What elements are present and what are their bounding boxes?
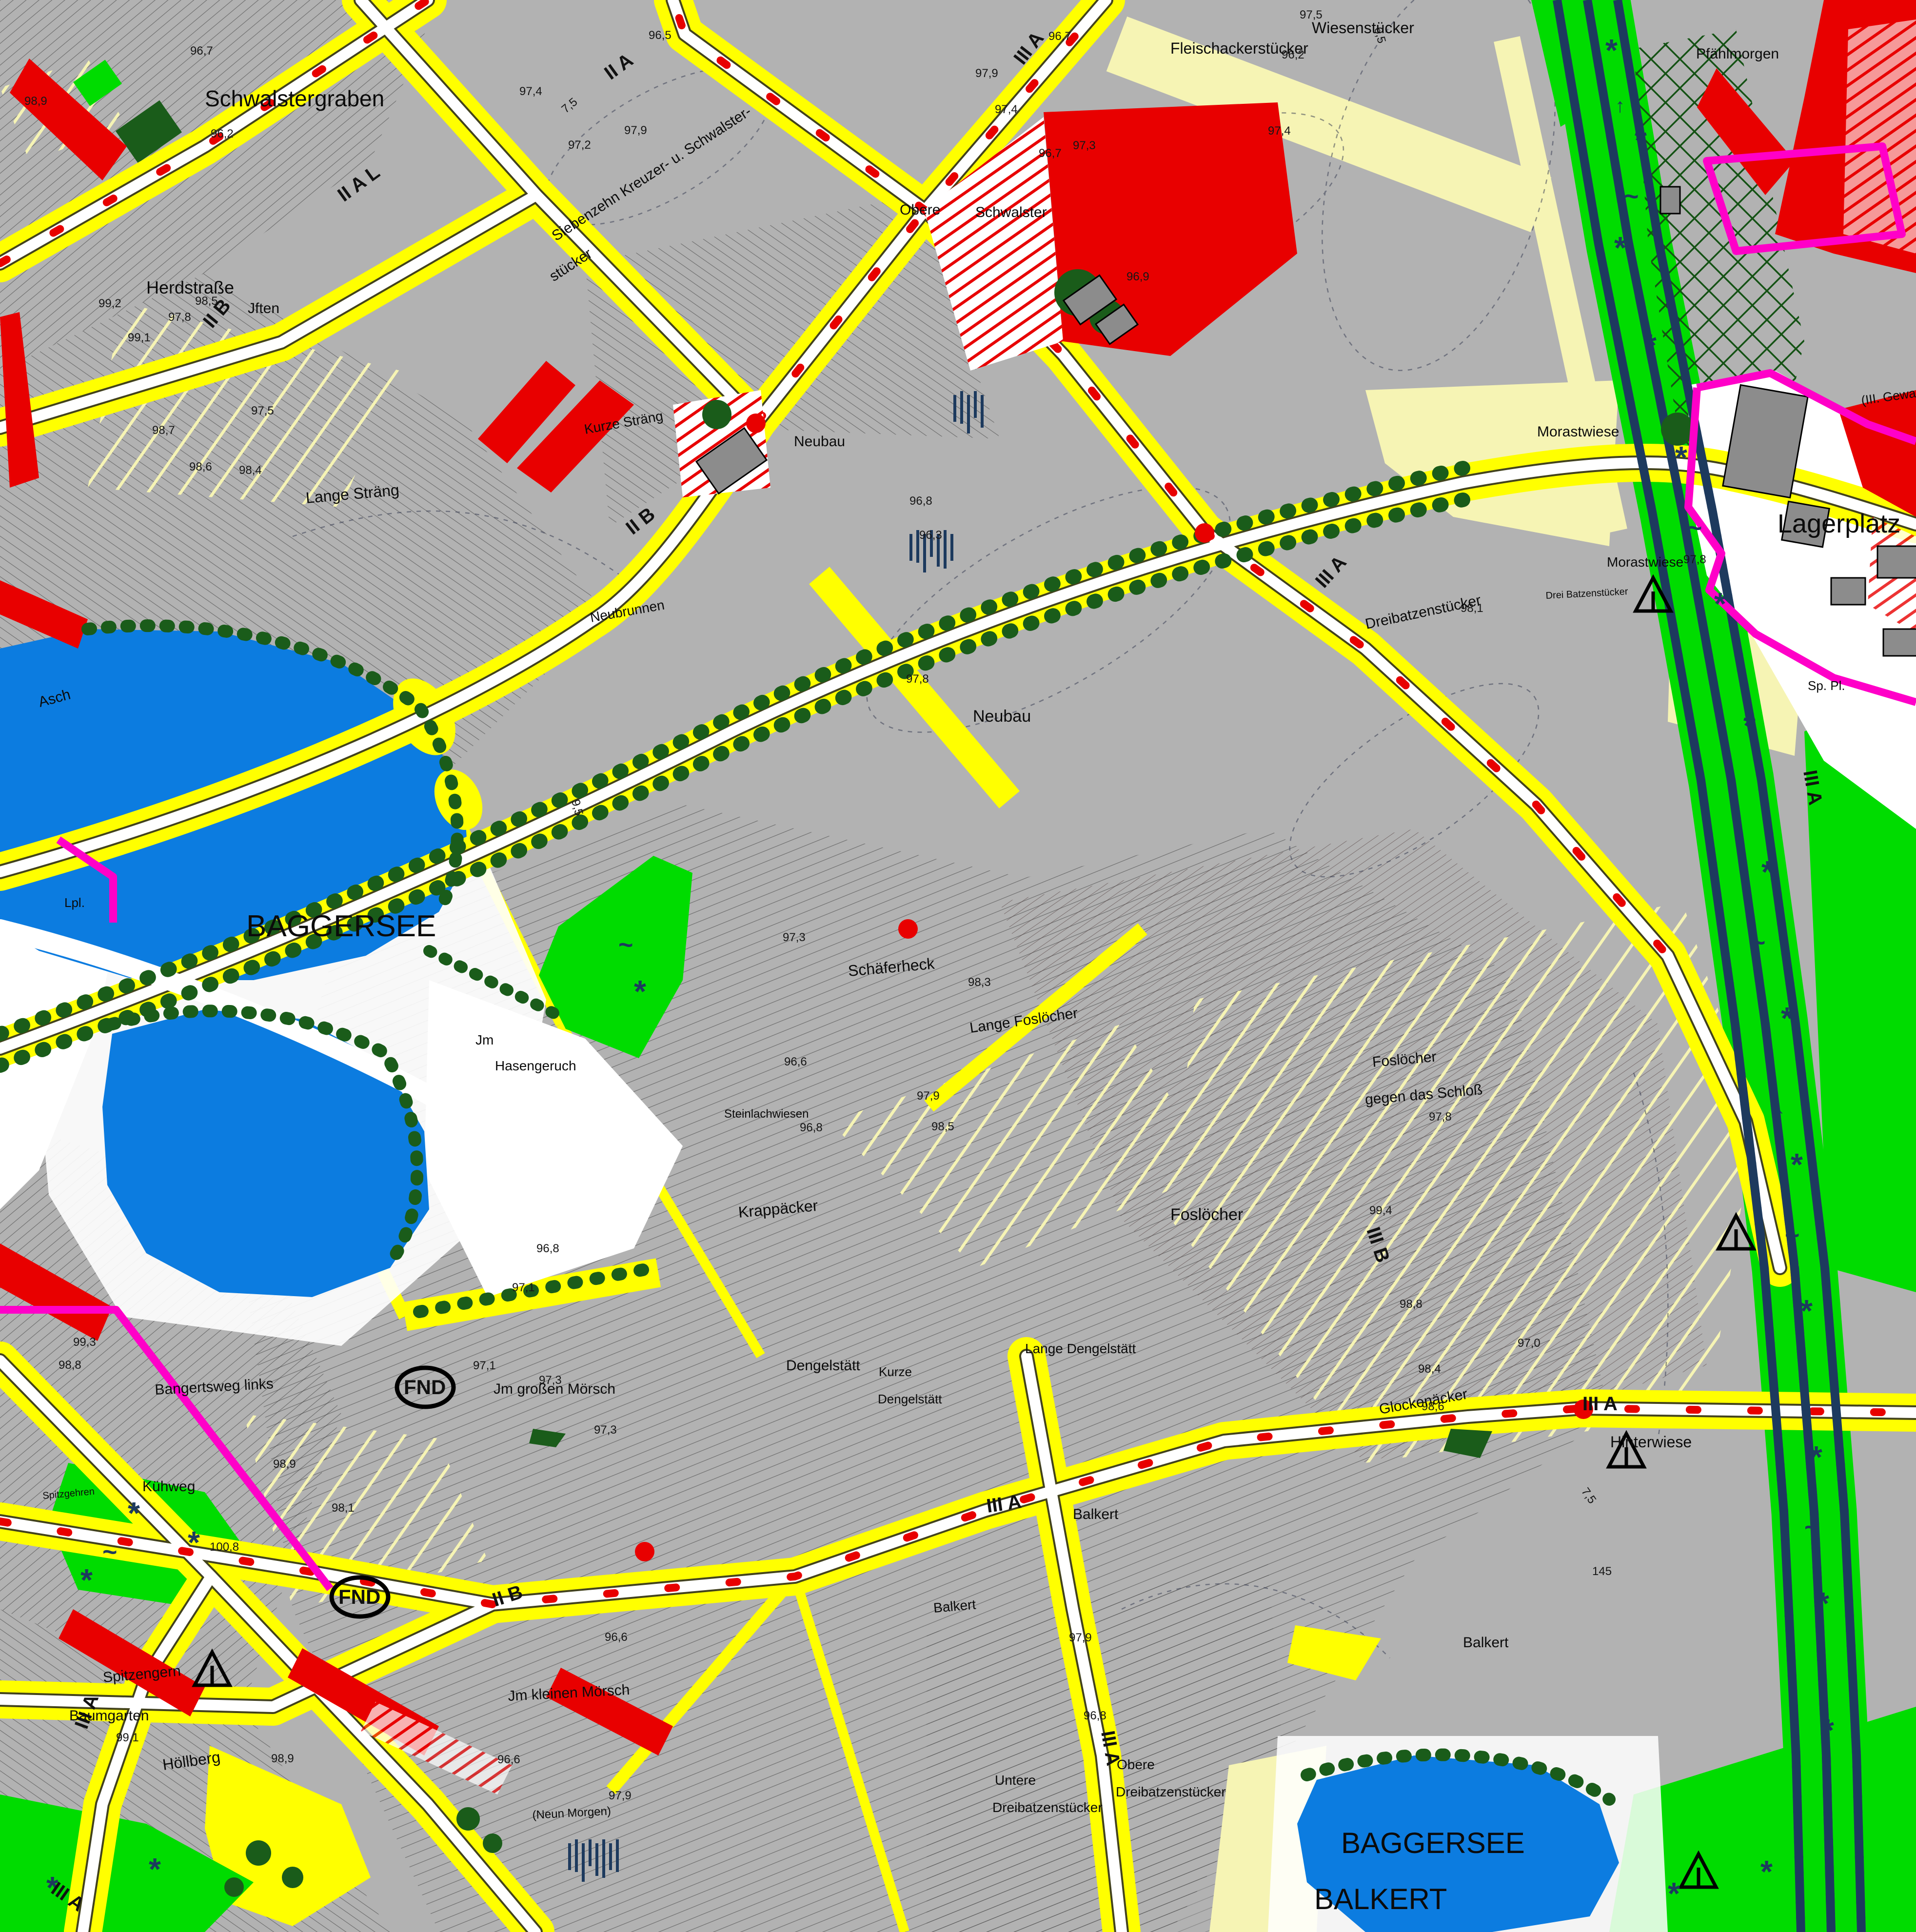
place-label: Balkert <box>1073 1506 1119 1522</box>
spot-height: 97,9 <box>624 124 647 137</box>
vegetation-symbol-icon: ~ <box>1751 928 1765 957</box>
place-label: Hasengeruch <box>495 1058 576 1073</box>
spot-height: 98,5 <box>931 1120 954 1133</box>
wetland-bars-icon <box>589 1839 592 1866</box>
vegetation-symbol-icon: * <box>1605 33 1618 68</box>
place-label: Hinterwiese <box>1610 1433 1692 1451</box>
vegetation-symbol-icon: ↑ <box>1799 1397 1809 1419</box>
vegetation-symbol-icon: * <box>1668 1876 1680 1911</box>
place-label: BAGGERSEE <box>246 909 436 943</box>
place-label: Untere <box>995 1773 1036 1788</box>
place-label: Neubau <box>973 707 1031 726</box>
spot-height: 96,8 <box>536 1242 559 1255</box>
wetland-bars-icon <box>575 1839 578 1872</box>
vegetation-symbol-icon: * <box>1761 854 1774 889</box>
place-label: Kurze <box>879 1364 912 1379</box>
spot-height: 96,8 <box>909 494 932 508</box>
spot-height: 98,9 <box>273 1458 296 1471</box>
spot-height: 96,9 <box>1126 270 1149 283</box>
wetland-bars-icon <box>960 391 963 424</box>
spot-height: 99,1 <box>116 1731 139 1744</box>
spot-height: 98,8 <box>59 1359 81 1372</box>
spot-height: 97,8 <box>1429 1110 1452 1124</box>
landuse-map-svg: FNDFND**********************~~~~~~~↑↑↑↑↑… <box>0 0 1916 1932</box>
spot-height: 98,4 <box>1418 1362 1441 1376</box>
place-label: Jm großen Mörsch <box>494 1381 615 1397</box>
wetland-bars-icon <box>602 1839 605 1878</box>
vegetation-symbol-icon: * <box>128 1496 140 1531</box>
vegetation-symbol-icon: * <box>1760 1854 1773 1889</box>
place-label: Dengelstätt <box>786 1358 860 1374</box>
vegetation-symbol-icon: ↑ <box>1731 812 1741 833</box>
place-label: Jften <box>248 300 279 316</box>
vegetation-symbol-icon: ~ <box>1785 1221 1799 1249</box>
spot-height: 97,5 <box>251 404 274 417</box>
wetland-bars-icon <box>595 1843 598 1876</box>
vegetation-symbol-icon: ~ <box>1804 1514 1819 1542</box>
vegetation-symbol-icon: * <box>1822 1713 1834 1748</box>
vegetation-symbol-icon: ~ <box>1687 514 1702 542</box>
vegetation-symbol-icon: * <box>634 974 646 1009</box>
spot-height: 96,7 <box>1039 147 1062 160</box>
place-label: Sp. Pl. <box>1808 678 1845 693</box>
spot-height: 97,0 <box>1518 1337 1541 1350</box>
wetland-bars-icon <box>582 1843 585 1882</box>
spot-height: 98,4 <box>239 464 262 477</box>
spot-height: 96,8 <box>1084 1709 1106 1722</box>
spot-height: 96,6 <box>784 1055 807 1068</box>
spot-height: 96,6 <box>605 1631 628 1644</box>
spot-height: 96,6 <box>497 1753 520 1766</box>
place-label: Dreibatzenstücker <box>1116 1784 1226 1799</box>
place-label: Foslöcher <box>1170 1205 1243 1224</box>
place-label: BAGGERSEE <box>1341 1827 1525 1859</box>
place-label: Balkert <box>1463 1635 1509 1651</box>
spot-height: 97,8 <box>1683 553 1706 566</box>
place-label: Lpl. <box>64 895 85 910</box>
place-label: Obere <box>1117 1757 1155 1772</box>
fnd-label: FND <box>338 1585 380 1608</box>
spot-height: 100,8 <box>210 1540 239 1554</box>
place-label: Morastwiese <box>1607 554 1683 570</box>
vegetation-symbol-icon: * <box>188 1525 200 1560</box>
place-label: BALKERT <box>1314 1883 1447 1915</box>
fnd-label: FND <box>404 1376 446 1399</box>
place-label: Wiesenstücker <box>1312 19 1414 37</box>
vegetation-symbol-icon: ↑ <box>1775 1104 1785 1126</box>
place-label: Jm <box>475 1032 494 1047</box>
vegetation-symbol-icon: ~ <box>102 1538 117 1566</box>
wetland-bars-icon <box>981 395 984 428</box>
junction-dot-icon <box>898 919 918 939</box>
spot-height: 97,3 <box>783 931 806 944</box>
wetland-bars-icon <box>909 534 912 561</box>
wetland-bars-icon <box>944 530 947 569</box>
wetland-bars-icon <box>616 1839 619 1872</box>
place-label: Obere <box>900 202 940 218</box>
vegetation-symbol-icon: * <box>1614 230 1626 265</box>
vegetation-symbol-icon: * <box>149 1852 161 1887</box>
wetland-bars-icon <box>953 395 956 422</box>
spot-height: 97,1 <box>473 1359 496 1372</box>
vegetation-symbol-icon: * <box>1810 1439 1822 1475</box>
vegetation-symbol-icon: * <box>80 1562 93 1597</box>
place-label: Fleischackerstücker <box>1170 39 1308 57</box>
spot-height: 96,7 <box>190 44 213 58</box>
spot-height: 99,2 <box>99 297 121 310</box>
wetland-bars-icon <box>609 1843 612 1870</box>
spot-height: 97,1 <box>512 1281 535 1294</box>
junction-dot-icon <box>1195 523 1214 543</box>
wetland-bars-icon <box>967 395 970 434</box>
spot-height: 98,6 <box>189 460 212 473</box>
spot-height: 97,4 <box>1268 124 1291 138</box>
spot-height: 98,7 <box>152 424 175 437</box>
place-label: Schwalster <box>975 204 1047 220</box>
place-label: Steinlachwiesen <box>724 1107 809 1121</box>
spot-height: 97,8 <box>906 672 929 686</box>
vegetation-symbol-icon: * <box>1791 1147 1803 1182</box>
spot-height: 98,9 <box>24 95 47 108</box>
wetland-bars-icon <box>568 1843 571 1870</box>
vegetation-symbol-icon: * <box>1743 708 1756 743</box>
vegetation-symbol-icon: ↑ <box>1615 95 1625 117</box>
spot-height: 97,3 <box>1073 139 1096 152</box>
spot-height: 96,8 <box>800 1121 823 1134</box>
spot-height: 97,9 <box>975 67 998 80</box>
spot-height: 97,9 <box>917 1089 940 1103</box>
spot-height: 96,3 <box>919 529 942 542</box>
map-canvas: FNDFND**********************~~~~~~~↑↑↑↑↑… <box>0 0 1916 1932</box>
wetland-bars-icon <box>950 534 953 561</box>
spot-height: 96,7 <box>1048 30 1071 43</box>
vegetation-symbol-icon: * <box>1644 328 1657 363</box>
spot-height: 96,5 <box>649 29 672 42</box>
spot-height: 99,1 <box>128 331 151 344</box>
vegetation-symbol-icon: ~ <box>618 931 633 959</box>
contour-label: 145 <box>1592 1565 1612 1578</box>
vegetation-symbol-icon: * <box>1714 586 1726 621</box>
spot-height: 99,4 <box>1369 1204 1392 1217</box>
junction-dot-icon <box>746 414 766 433</box>
spot-height: 97,9 <box>609 1789 632 1802</box>
road-class-label: III A <box>1582 1393 1618 1415</box>
spot-height: 97,2 <box>568 138 591 152</box>
spot-height: 97,4 <box>519 85 542 98</box>
vegetation-symbol-icon: * <box>1817 1586 1829 1621</box>
spot-height: 98,1 <box>332 1501 355 1515</box>
place-label: Lange Dengelstätt <box>1025 1341 1136 1356</box>
place-label: Lagerplatz <box>1778 509 1900 538</box>
vegetation-symbol-icon: ~ <box>1624 182 1639 211</box>
vegetation-symbol-icon: * <box>1781 1001 1793 1036</box>
spot-height: 98,9 <box>271 1752 294 1765</box>
place-label: Dreibatzenstücker <box>992 1800 1103 1815</box>
place-label: Schwalstergraben <box>205 86 384 111</box>
vegetation-symbol-icon: * <box>1800 1293 1813 1328</box>
place-label: Neubau <box>794 434 845 450</box>
spot-height: 97,3 <box>594 1423 617 1437</box>
vegetation-symbol-icon: * <box>1635 123 1647 158</box>
spot-height: 98,8 <box>1400 1298 1422 1311</box>
place-label: Dengelstätt <box>878 1392 942 1406</box>
place-label: Herdstraße <box>146 277 234 297</box>
vegetation-symbol-icon: * <box>1675 440 1687 475</box>
spot-height: 97,4 <box>995 103 1018 116</box>
place-label: Baumgarten <box>69 1708 149 1724</box>
vegetation-symbol-icon: ↑ <box>1656 402 1665 424</box>
spot-height: 99,3 <box>73 1336 96 1349</box>
spot-height: 98,3 <box>968 976 991 989</box>
spot-height: 97,9 <box>1069 1631 1092 1644</box>
junction-dot-icon <box>635 1542 654 1561</box>
place-label: Morastwiese <box>1537 424 1619 440</box>
place-label: Pfählmorgen <box>1696 46 1779 62</box>
vegetation-symbol-icon: ↑ <box>1817 1665 1826 1687</box>
wetland-bars-icon <box>974 391 977 418</box>
spot-height: 97,8 <box>168 311 191 324</box>
place-label: Kühweg <box>142 1479 195 1495</box>
spot-height: 96,2 <box>211 127 234 140</box>
